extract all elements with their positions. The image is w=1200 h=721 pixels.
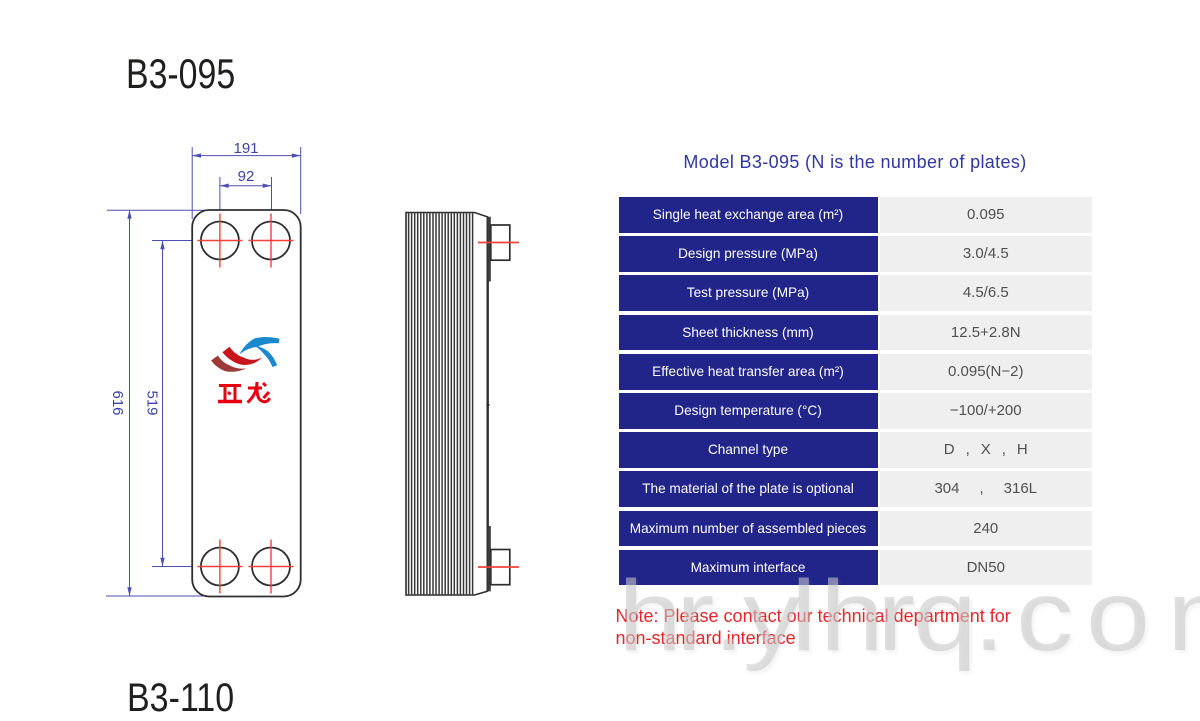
svg-text:519: 519 bbox=[143, 390, 160, 415]
svg-text:191: 191 bbox=[233, 140, 258, 157]
svg-text:616: 616 bbox=[109, 390, 126, 415]
svg-text:92: 92 bbox=[238, 168, 255, 185]
